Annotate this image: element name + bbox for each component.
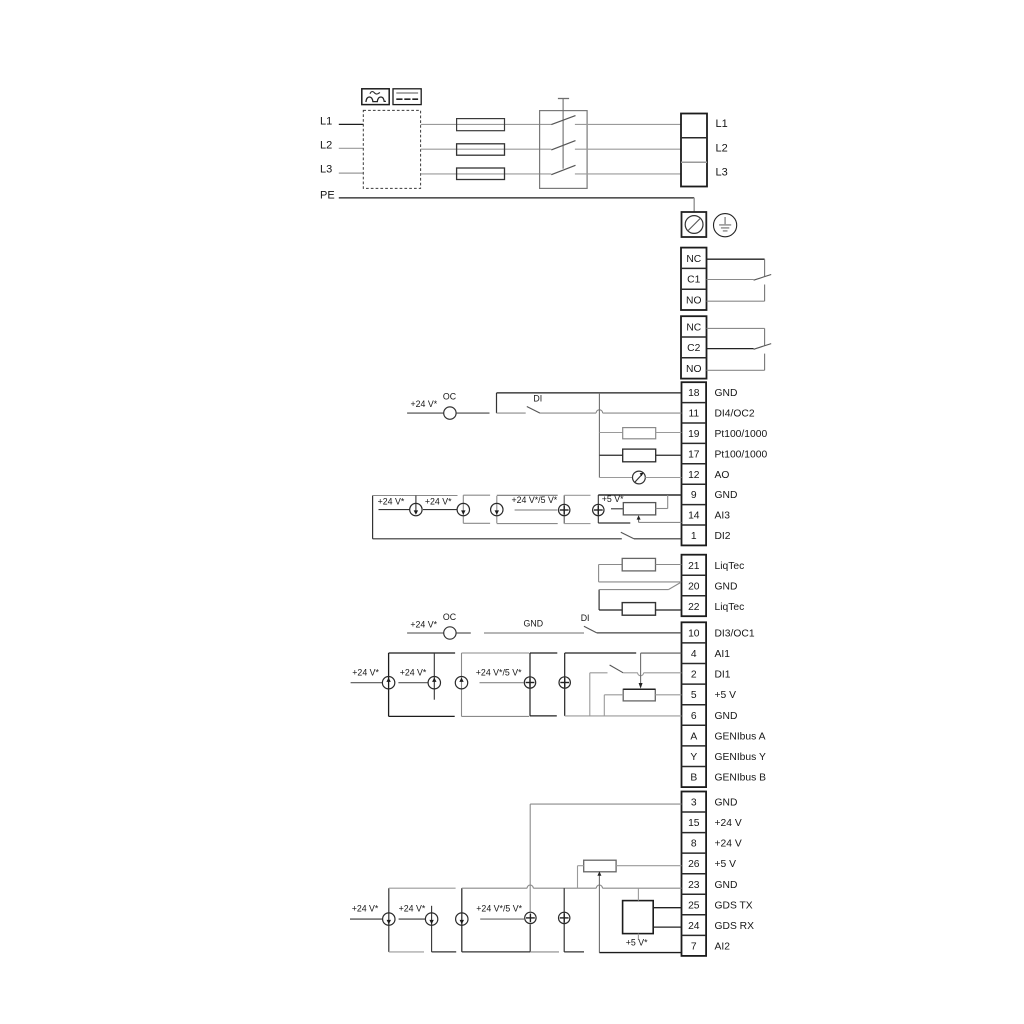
- svg-text:22: 22: [688, 602, 700, 613]
- svg-text:GND: GND: [524, 619, 544, 629]
- svg-text:+24 V*: +24 V*: [352, 668, 379, 678]
- svg-text:NO: NO: [686, 295, 701, 306]
- svg-text:GND: GND: [715, 798, 738, 809]
- svg-text:DI: DI: [533, 394, 542, 404]
- svg-text:DI2: DI2: [715, 531, 731, 542]
- svg-text:NO: NO: [686, 364, 701, 375]
- svg-text:+24 V*: +24 V*: [425, 496, 452, 506]
- svg-text:Pt100/1000: Pt100/1000: [715, 429, 768, 440]
- svg-text:11: 11: [688, 409, 699, 420]
- svg-text:OC: OC: [443, 612, 457, 622]
- svg-text:19: 19: [688, 429, 700, 440]
- svg-text:+24 V*: +24 V*: [378, 496, 405, 506]
- svg-text:+24 V*: +24 V*: [399, 903, 426, 913]
- svg-text:L2: L2: [320, 140, 332, 152]
- svg-text:2: 2: [691, 670, 697, 681]
- svg-text:18: 18: [688, 388, 700, 399]
- svg-text:14: 14: [688, 511, 700, 522]
- svg-text:NC: NC: [686, 254, 701, 265]
- svg-text:10: 10: [688, 628, 700, 639]
- svg-text:GND: GND: [715, 711, 738, 722]
- svg-text:GND: GND: [715, 490, 738, 501]
- svg-text:PE: PE: [320, 190, 335, 202]
- svg-text:4: 4: [691, 649, 697, 660]
- svg-text:L2: L2: [716, 142, 728, 154]
- svg-text:C1: C1: [687, 275, 700, 286]
- svg-text:B: B: [690, 773, 697, 784]
- svg-text:23: 23: [688, 880, 700, 891]
- svg-text:+24 V*: +24 V*: [411, 399, 438, 409]
- svg-text:LiqTec: LiqTec: [715, 561, 745, 572]
- svg-text:+5 V*: +5 V*: [626, 937, 648, 947]
- svg-text:GDS TX: GDS TX: [715, 900, 753, 911]
- svg-text:+5 V: +5 V: [715, 690, 737, 701]
- svg-text:9: 9: [691, 490, 697, 501]
- svg-text:+24 V*: +24 V*: [410, 620, 437, 630]
- svg-text:6: 6: [691, 711, 697, 722]
- svg-text:Y: Y: [690, 752, 697, 763]
- svg-text:+24 V*/5 V*: +24 V*/5 V*: [512, 495, 558, 505]
- svg-text:+24 V*/5 V*: +24 V*/5 V*: [476, 903, 522, 913]
- svg-text:24: 24: [688, 921, 700, 932]
- svg-text:DI4/OC2: DI4/OC2: [715, 409, 755, 420]
- svg-text:21: 21: [688, 561, 700, 572]
- svg-text:Pt100/1000: Pt100/1000: [715, 449, 768, 460]
- svg-text:25: 25: [688, 900, 700, 911]
- svg-text:L1: L1: [716, 118, 728, 130]
- svg-text:12: 12: [688, 470, 700, 481]
- svg-text:17: 17: [688, 449, 700, 460]
- svg-text:+24 V*: +24 V*: [400, 668, 427, 678]
- svg-text:DI3/OC1: DI3/OC1: [715, 628, 755, 639]
- svg-text:GND: GND: [715, 880, 738, 891]
- svg-text:DI: DI: [581, 613, 590, 623]
- svg-text:8: 8: [691, 839, 697, 850]
- svg-text:NC: NC: [686, 322, 701, 333]
- svg-text:L3: L3: [320, 164, 332, 176]
- svg-text:A: A: [690, 731, 697, 742]
- svg-text:DI1: DI1: [715, 670, 731, 681]
- svg-text:L3: L3: [716, 167, 728, 179]
- svg-text:GND: GND: [715, 581, 738, 592]
- svg-text:+24 V*: +24 V*: [352, 903, 379, 913]
- svg-text:GENIbus Y: GENIbus Y: [715, 752, 766, 763]
- svg-text:AI3: AI3: [715, 511, 731, 522]
- svg-text:3: 3: [691, 798, 697, 809]
- svg-text:+24 V*/5 V*: +24 V*/5 V*: [476, 668, 522, 678]
- svg-text:OC: OC: [443, 391, 457, 401]
- svg-text:+5 V*: +5 V*: [602, 494, 624, 504]
- svg-text:26: 26: [688, 859, 700, 870]
- svg-text:GENIbus A: GENIbus A: [715, 731, 766, 742]
- svg-text:GND: GND: [715, 388, 738, 399]
- svg-text:L1: L1: [320, 116, 332, 128]
- svg-text:AO: AO: [715, 470, 730, 481]
- svg-text:+5 V: +5 V: [715, 859, 737, 870]
- svg-text:GDS RX: GDS RX: [715, 921, 755, 932]
- svg-text:7: 7: [691, 941, 697, 952]
- svg-text:AI2: AI2: [715, 941, 731, 952]
- svg-text:LiqTec: LiqTec: [715, 602, 745, 613]
- svg-text:AI1: AI1: [715, 649, 731, 660]
- svg-text:C2: C2: [687, 343, 700, 354]
- svg-text:15: 15: [688, 818, 700, 829]
- svg-text:5: 5: [691, 690, 697, 701]
- svg-text:20: 20: [688, 581, 700, 592]
- svg-text:+24 V: +24 V: [715, 818, 742, 829]
- svg-text:GENIbus B: GENIbus B: [715, 773, 767, 784]
- svg-text:+24 V: +24 V: [715, 839, 742, 850]
- svg-text:1: 1: [691, 531, 697, 542]
